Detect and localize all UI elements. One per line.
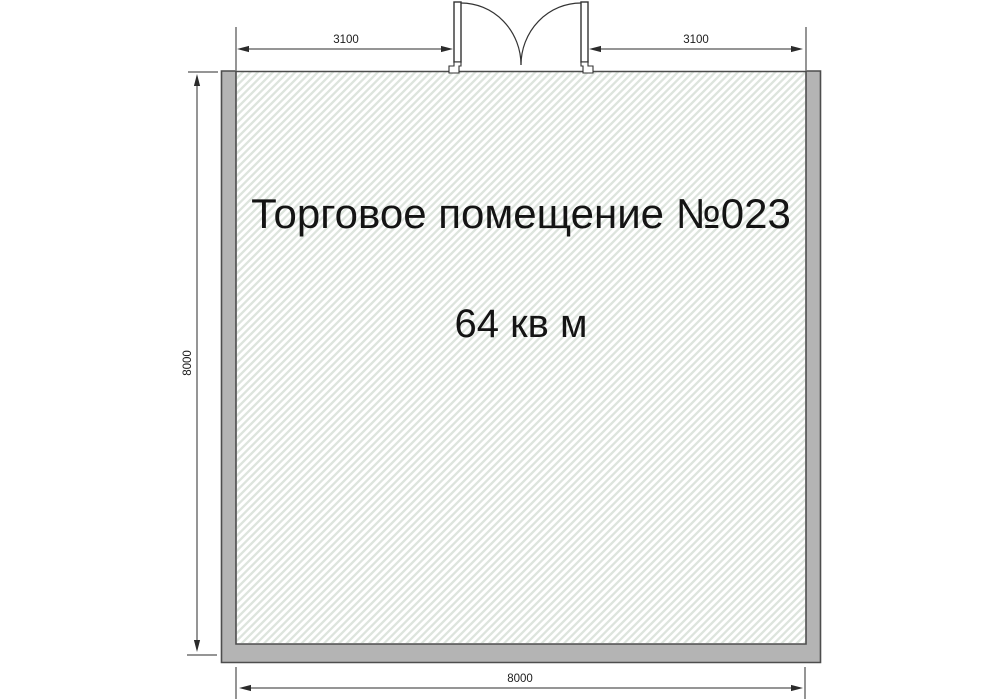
room-area: 64 кв м (455, 302, 588, 346)
double-door-icon (449, 2, 593, 73)
room-interior (236, 71, 806, 644)
dimension-arrow (237, 46, 249, 52)
dimension-arrow (589, 46, 601, 52)
dimension-top-left: 3100 (236, 27, 453, 70)
dimension-bottom: 8000 (236, 667, 805, 699)
floor-plan: 3100 3100 8000 8000 Торговое помещение №… (0, 0, 1000, 700)
door-jamb-left (449, 62, 461, 73)
door-swing-arc-right (521, 3, 581, 65)
door-swing-arc-left (461, 3, 521, 65)
dimension-left: 8000 (182, 72, 218, 655)
dimension-label: 8000 (507, 673, 533, 685)
door-leaf-left (454, 2, 461, 62)
dimension-arrow (791, 685, 803, 691)
room-hatch (237, 72, 805, 643)
dimension-arrow (194, 74, 200, 86)
dimension-arrow (194, 640, 200, 652)
door-leaf-right (581, 2, 588, 62)
dimension-arrow (441, 46, 453, 52)
dimension-label: 8000 (182, 350, 194, 376)
dimension-arrow (791, 46, 803, 52)
dimension-label: 3100 (683, 34, 709, 46)
door-jamb-right (581, 62, 593, 73)
dimension-top-right: 3100 (589, 27, 806, 70)
dimension-arrow (239, 685, 251, 691)
dimension-label: 3100 (333, 34, 359, 46)
room-title: Торговое помещение №023 (251, 190, 791, 237)
